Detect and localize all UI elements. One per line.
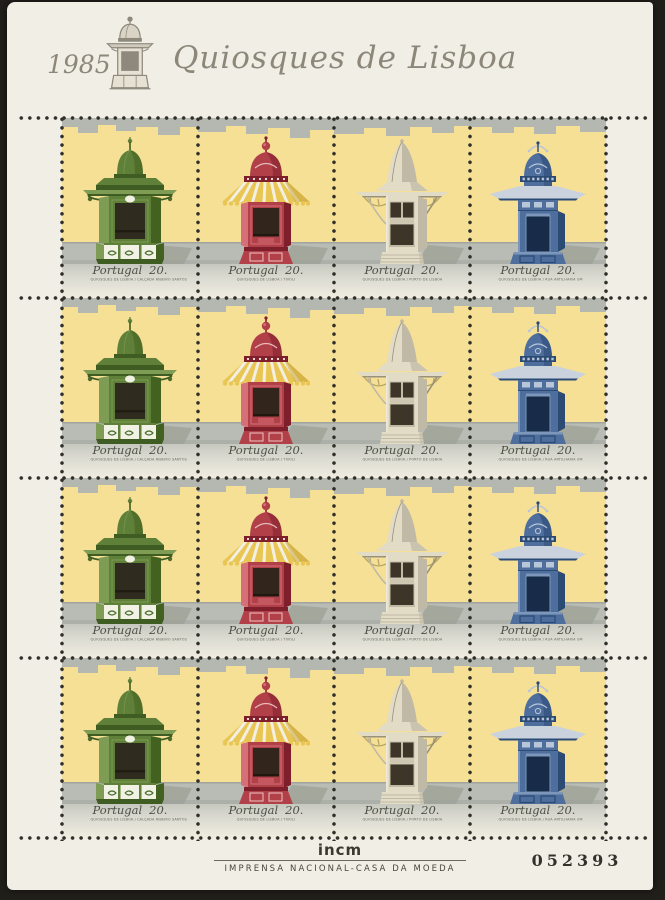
country-label: Portugal	[229, 443, 279, 457]
stamp-subcaption: QUIOSQUES DE LISBOA / RUA ARTILHARIA UM	[499, 638, 578, 641]
stamp-caption: Portugal20. QUIOSQUES DE LISBOA / RUA AR…	[470, 625, 606, 644]
stamp-red-kiosk: Portugal20. QUIOSQUES DE LISBOA / TIVOLI	[198, 478, 334, 658]
stamp-caption: Portugal20. QUIOSQUES DE LISBOA / CALÇAD…	[62, 625, 198, 644]
perforation-column	[603, 115, 609, 841]
face-value: 20.	[421, 263, 439, 277]
stamp-inscription: Portugal20.	[470, 805, 606, 817]
country-label: Portugal	[93, 443, 143, 457]
perforation-column	[467, 115, 473, 841]
country-label: Portugal	[501, 623, 551, 637]
face-value: 20.	[421, 803, 439, 817]
stamp-caption: Portugal20. QUIOSQUES DE LISBOA / PORTO …	[334, 805, 470, 824]
kiosk-engraving-icon	[99, 14, 161, 104]
country-label: Portugal	[93, 263, 143, 277]
stamp-red-kiosk: Portugal20. QUIOSQUES DE LISBOA / TIVOLI	[198, 298, 334, 478]
stamp-green-kiosk: Portugal20. QUIOSQUES DE LISBOA / CALÇAD…	[62, 478, 198, 658]
stamp-subcaption: QUIOSQUES DE LISBOA / CALÇADA RIBEIRO SA…	[91, 818, 170, 821]
stamp-cream-kiosk: Portugal20. QUIOSQUES DE LISBOA / PORTO …	[334, 298, 470, 478]
imprint-divider	[214, 860, 466, 861]
stamp-inscription: Portugal20.	[62, 445, 198, 457]
stamp-subcaption: QUIOSQUES DE LISBOA / TIVOLI	[227, 458, 306, 461]
stamp-inscription: Portugal20.	[198, 805, 334, 817]
face-value: 20.	[421, 623, 439, 637]
stamp-caption: Portugal20. QUIOSQUES DE LISBOA / TIVOLI	[198, 805, 334, 824]
stamp-green-kiosk: Portugal20. QUIOSQUES DE LISBOA / CALÇAD…	[62, 298, 198, 478]
stamp-blue-kiosk: Portugal20. QUIOSQUES DE LISBOA / RUA AR…	[470, 118, 606, 298]
country-label: Portugal	[229, 263, 279, 277]
face-value: 20.	[149, 623, 167, 637]
stamp-subcaption: QUIOSQUES DE LISBOA / PORTO DE LISBOA	[363, 638, 442, 641]
stamp-red-kiosk: Portugal20. QUIOSQUES DE LISBOA / TIVOLI	[198, 118, 334, 298]
face-value: 20.	[285, 623, 303, 637]
stamp-subcaption: QUIOSQUES DE LISBOA / TIVOLI	[227, 638, 306, 641]
stamp-blue-kiosk: Portugal20. QUIOSQUES DE LISBOA / RUA AR…	[470, 658, 606, 838]
incm-logo: incm	[190, 843, 490, 859]
stamp-inscription: Portugal20.	[62, 625, 198, 637]
stamp-inscription: Portugal20.	[198, 625, 334, 637]
face-value: 20.	[557, 443, 575, 457]
stamp-subcaption: QUIOSQUES DE LISBOA / RUA ARTILHARIA UM	[499, 818, 578, 821]
stamp-inscription: Portugal20.	[470, 445, 606, 457]
perforation-column	[195, 115, 201, 841]
stamp-blue-kiosk: Portugal20. QUIOSQUES DE LISBOA / RUA AR…	[470, 478, 606, 658]
stamp-subcaption: QUIOSQUES DE LISBOA / CALÇADA RIBEIRO SA…	[91, 278, 170, 281]
printer-imprint: IMPRENSA NACIONAL-CASA DA MOEDA	[190, 864, 490, 874]
stamp-subcaption: QUIOSQUES DE LISBOA / PORTO DE LISBOA	[363, 278, 442, 281]
stamp-subcaption: QUIOSQUES DE LISBOA / RUA ARTILHARIA UM	[499, 278, 578, 281]
face-value: 20.	[557, 263, 575, 277]
stamp-caption: Portugal20. QUIOSQUES DE LISBOA / RUA AR…	[470, 445, 606, 464]
stamp-caption: Portugal20. QUIOSQUES DE LISBOA / PORTO …	[334, 265, 470, 284]
stamp-caption: Portugal20. QUIOSQUES DE LISBOA / TIVOLI	[198, 445, 334, 464]
stamp-caption: Portugal20. QUIOSQUES DE LISBOA / TIVOLI	[198, 625, 334, 644]
stamp-cream-kiosk: Portugal20. QUIOSQUES DE LISBOA / PORTO …	[334, 118, 470, 298]
perforation-column	[59, 115, 65, 841]
sheet-number: 052393	[512, 851, 642, 870]
face-value: 20.	[421, 443, 439, 457]
face-value: 20.	[149, 263, 167, 277]
country-label: Portugal	[365, 443, 415, 457]
stamp-red-kiosk: Portugal20. QUIOSQUES DE LISBOA / TIVOLI	[198, 658, 334, 838]
stamp-caption: Portugal20. QUIOSQUES DE LISBOA / PORTO …	[334, 445, 470, 464]
stamp-inscription: Portugal20.	[334, 625, 470, 637]
stamp-subcaption: QUIOSQUES DE LISBOA / PORTO DE LISBOA	[363, 818, 442, 821]
country-label: Portugal	[501, 263, 551, 277]
stamp-green-kiosk: Portugal20. QUIOSQUES DE LISBOA / CALÇAD…	[62, 658, 198, 838]
scanned-stamp-sheet: 1985 Quiosques de Lisboa Portugal20. QUI…	[0, 0, 665, 900]
stamp-caption: Portugal20. QUIOSQUES DE LISBOA / PORTO …	[334, 625, 470, 644]
face-value: 20.	[285, 803, 303, 817]
printer-imprint-block: incm IMPRENSA NACIONAL-CASA DA MOEDA	[190, 843, 490, 874]
stamp-caption: Portugal20. QUIOSQUES DE LISBOA / CALÇAD…	[62, 805, 198, 824]
country-label: Portugal	[501, 443, 551, 457]
country-label: Portugal	[365, 263, 415, 277]
stamp-caption: Portugal20. QUIOSQUES DE LISBOA / CALÇAD…	[62, 265, 198, 284]
stamp-inscription: Portugal20.	[470, 625, 606, 637]
stamp-inscription: Portugal20.	[334, 445, 470, 457]
face-value: 20.	[149, 803, 167, 817]
stamp-green-kiosk: Portugal20. QUIOSQUES DE LISBOA / CALÇAD…	[62, 118, 198, 298]
country-label: Portugal	[229, 803, 279, 817]
face-value: 20.	[285, 263, 303, 277]
face-value: 20.	[557, 623, 575, 637]
stamp-subcaption: QUIOSQUES DE LISBOA / CALÇADA RIBEIRO SA…	[91, 638, 170, 641]
stamp-inscription: Portugal20.	[470, 265, 606, 277]
face-value: 20.	[557, 803, 575, 817]
stamp-inscription: Portugal20.	[62, 265, 198, 277]
stamp-caption: Portugal20. QUIOSQUES DE LISBOA / RUA AR…	[470, 805, 606, 824]
stamp-inscription: Portugal20.	[334, 265, 470, 277]
stamp-cream-kiosk: Portugal20. QUIOSQUES DE LISBOA / PORTO …	[334, 478, 470, 658]
country-label: Portugal	[229, 623, 279, 637]
stamp-subcaption: QUIOSQUES DE LISBOA / CALÇADA RIBEIRO SA…	[91, 458, 170, 461]
stamp-subcaption: QUIOSQUES DE LISBOA / PORTO DE LISBOA	[363, 458, 442, 461]
stamp-caption: Portugal20. QUIOSQUES DE LISBOA / TIVOLI	[198, 265, 334, 284]
country-label: Portugal	[93, 623, 143, 637]
stamp-caption: Portugal20. QUIOSQUES DE LISBOA / RUA AR…	[470, 265, 606, 284]
stamp-blue-kiosk: Portugal20. QUIOSQUES DE LISBOA / RUA AR…	[470, 298, 606, 478]
stamp-cream-kiosk: Portugal20. QUIOSQUES DE LISBOA / PORTO …	[334, 658, 470, 838]
face-value: 20.	[149, 443, 167, 457]
stamp-caption: Portugal20. QUIOSQUES DE LISBOA / CALÇAD…	[62, 445, 198, 464]
face-value: 20.	[285, 443, 303, 457]
stamp-inscription: Portugal20.	[334, 805, 470, 817]
country-label: Portugal	[501, 803, 551, 817]
country-label: Portugal	[365, 623, 415, 637]
stamp-inscription: Portugal20.	[198, 265, 334, 277]
stamp-subcaption: QUIOSQUES DE LISBOA / TIVOLI	[227, 818, 306, 821]
sheet-title: Quiosques de Lisboa	[173, 40, 517, 76]
stamp-sheet-paper: 1985 Quiosques de Lisboa Portugal20. QUI…	[7, 2, 653, 890]
stamp-inscription: Portugal20.	[198, 445, 334, 457]
stamp-inscription: Portugal20.	[62, 805, 198, 817]
stamp-subcaption: QUIOSQUES DE LISBOA / RUA ARTILHARIA UM	[499, 458, 578, 461]
stamp-subcaption: QUIOSQUES DE LISBOA / TIVOLI	[227, 278, 306, 281]
country-label: Portugal	[365, 803, 415, 817]
perforation-column	[331, 115, 337, 841]
country-label: Portugal	[93, 803, 143, 817]
